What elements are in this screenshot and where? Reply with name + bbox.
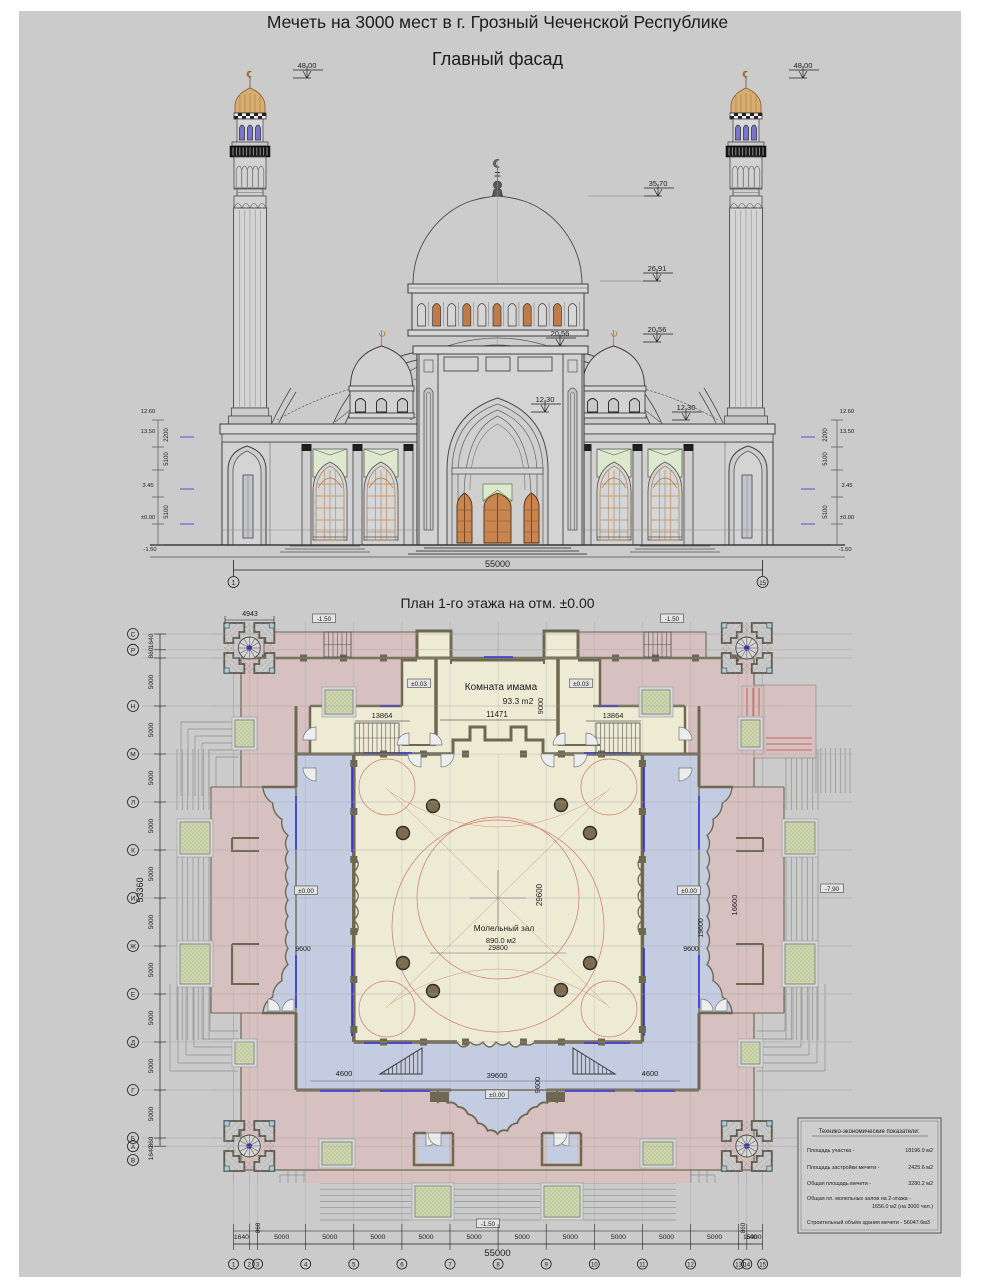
svg-text:13864: 13864 — [603, 711, 624, 720]
svg-text:2425.6 м2: 2425.6 м2 — [908, 1165, 933, 1171]
svg-text:16600: 16600 — [730, 895, 739, 916]
svg-text:±0.03: ±0.03 — [411, 681, 427, 688]
svg-text:55000: 55000 — [485, 559, 510, 569]
svg-text:5000: 5000 — [148, 914, 155, 929]
svg-text:Главный фасад: Главный фасад — [432, 49, 564, 69]
svg-text:1640: 1640 — [234, 1234, 249, 1241]
svg-text:Г: Г — [131, 1088, 135, 1095]
svg-text:9600: 9600 — [295, 946, 311, 953]
svg-text:Б: Б — [131, 1136, 135, 1143]
svg-text:5000: 5000 — [322, 1234, 337, 1241]
svg-text:Общая площадь мечети -: Общая площадь мечети - — [807, 1181, 871, 1187]
svg-text:13.50: 13.50 — [141, 429, 156, 435]
svg-text:5000: 5000 — [418, 1234, 433, 1241]
svg-text:5000: 5000 — [148, 770, 155, 785]
svg-text:5100: 5100 — [823, 505, 829, 519]
svg-text:5000: 5000 — [148, 866, 155, 881]
svg-text:860: 860 — [255, 1222, 262, 1233]
svg-text:-1.50: -1.50 — [838, 547, 851, 553]
svg-text:М: М — [130, 752, 135, 759]
svg-text:11: 11 — [639, 1262, 646, 1268]
svg-text:29600: 29600 — [535, 883, 544, 906]
svg-text:5000: 5000 — [148, 1058, 155, 1073]
svg-text:13.50: 13.50 — [840, 429, 855, 435]
svg-text:С: С — [131, 632, 136, 639]
svg-text:-1.50: -1.50 — [481, 1221, 496, 1228]
svg-text:5000: 5000 — [274, 1234, 289, 1241]
svg-text:15: 15 — [759, 581, 766, 587]
svg-text:19600: 19600 — [698, 918, 705, 938]
svg-text:5000: 5000 — [563, 1234, 578, 1241]
svg-text:9600: 9600 — [683, 946, 699, 953]
svg-text:93.3 m2: 93.3 m2 — [503, 696, 534, 706]
svg-text:-1.50: -1.50 — [317, 616, 332, 623]
svg-text:1640: 1640 — [148, 1145, 155, 1160]
svg-text:Л: Л — [131, 800, 135, 807]
svg-text:В: В — [131, 1158, 135, 1165]
svg-text:Площадь застройки мечети -: Площадь застройки мечети - — [807, 1164, 880, 1171]
svg-text:2200: 2200 — [823, 428, 829, 442]
svg-text:5000: 5000 — [148, 818, 155, 833]
svg-text:±0.00: ±0.00 — [298, 888, 314, 895]
svg-text:890.0 м2: 890.0 м2 — [486, 936, 516, 945]
svg-text:9600: 9600 — [533, 1077, 542, 1094]
svg-text:Ж: Ж — [130, 944, 136, 951]
svg-text:1640: 1640 — [148, 633, 155, 648]
svg-text:5000: 5000 — [515, 1234, 530, 1241]
svg-text:15: 15 — [759, 1262, 766, 1268]
svg-text:Площадь участка -: Площадь участка - — [807, 1148, 855, 1154]
svg-text:18196.0 м2: 18196.0 м2 — [905, 1148, 933, 1154]
svg-text:Р: Р — [131, 647, 135, 654]
svg-text:-1.50: -1.50 — [665, 616, 680, 623]
svg-text:860: 860 — [740, 1222, 747, 1233]
svg-text:3280.2 м2: 3280.2 м2 — [908, 1181, 933, 1187]
svg-text:5000: 5000 — [148, 674, 155, 689]
svg-text:5000: 5000 — [148, 1106, 155, 1121]
svg-text:Общая пл. молельных залов на 2: Общая пл. молельных залов на 2-этажа - — [807, 1196, 911, 1202]
svg-text:2200: 2200 — [164, 428, 170, 442]
svg-text:Строительный объём здания мече: Строительный объём здания мечети - 56047… — [807, 1219, 930, 1226]
svg-text:4600: 4600 — [336, 1069, 353, 1078]
svg-text:И: И — [131, 896, 136, 903]
svg-text:5000: 5000 — [370, 1234, 385, 1241]
svg-text:1640: 1640 — [743, 1234, 757, 1241]
svg-text:860: 860 — [148, 647, 155, 658]
svg-text:14: 14 — [743, 1262, 750, 1268]
svg-text:12: 12 — [687, 1262, 694, 1268]
svg-text:3.45: 3.45 — [142, 483, 153, 489]
svg-text:860: 860 — [148, 1136, 155, 1147]
svg-text:-1.50: -1.50 — [143, 547, 156, 553]
svg-text:3.45: 3.45 — [841, 483, 852, 489]
svg-text:5000: 5000 — [611, 1234, 626, 1241]
svg-text:12.60: 12.60 — [141, 409, 156, 415]
svg-text:±0.03: ±0.03 — [573, 681, 589, 688]
svg-text:11471: 11471 — [486, 710, 508, 719]
svg-text:Д: Д — [131, 1040, 136, 1047]
svg-text:5000: 5000 — [148, 1010, 155, 1025]
svg-text:-7.90: -7.90 — [825, 886, 840, 893]
svg-text:Молельный зал: Молельный зал — [474, 923, 535, 933]
svg-text:5100: 5100 — [164, 505, 170, 519]
svg-text:5100: 5100 — [823, 452, 829, 466]
svg-text:4943: 4943 — [242, 611, 258, 618]
svg-text:53360: 53360 — [135, 877, 145, 902]
svg-text:±0.00: ±0.00 — [489, 1092, 505, 1099]
svg-text:±0.00: ±0.00 — [840, 515, 854, 521]
svg-text:5100: 5100 — [164, 452, 170, 466]
svg-text:10: 10 — [591, 1262, 598, 1268]
svg-text:5000: 5000 — [659, 1234, 674, 1241]
svg-text:4600: 4600 — [642, 1069, 659, 1078]
svg-text:Н: Н — [131, 704, 136, 711]
svg-text:А: А — [131, 1144, 136, 1151]
svg-text:55000: 55000 — [484, 1248, 510, 1259]
svg-text:5000: 5000 — [148, 962, 155, 977]
svg-text:1656.0 м2 (на 3000 чел.): 1656.0 м2 (на 3000 чел.) — [872, 1204, 933, 1210]
svg-text:Мечеть на 3000 мест в г. Грозн: Мечеть на 3000 мест в г. Грозный Чеченск… — [267, 12, 728, 32]
svg-text:Технико-экономические показате: Технико-экономические показатели: — [819, 1129, 920, 1135]
svg-text:5000: 5000 — [707, 1234, 722, 1241]
svg-text:±0.00: ±0.00 — [681, 888, 697, 895]
svg-text:Комната имама: Комната имама — [465, 682, 538, 693]
svg-text:±0.00: ±0.00 — [141, 515, 155, 521]
svg-text:Е: Е — [131, 992, 136, 999]
svg-text:13864: 13864 — [372, 711, 393, 720]
svg-text:К: К — [131, 848, 135, 855]
svg-text:План 1-го этажа на отм. ±0.00: План 1-го этажа на отм. ±0.00 — [400, 595, 594, 611]
svg-text:1: 1 — [232, 580, 236, 587]
svg-text:39600: 39600 — [487, 1071, 508, 1080]
svg-text:5000: 5000 — [148, 722, 155, 737]
svg-text:12.60: 12.60 — [840, 409, 855, 415]
svg-text:5000: 5000 — [467, 1234, 482, 1241]
